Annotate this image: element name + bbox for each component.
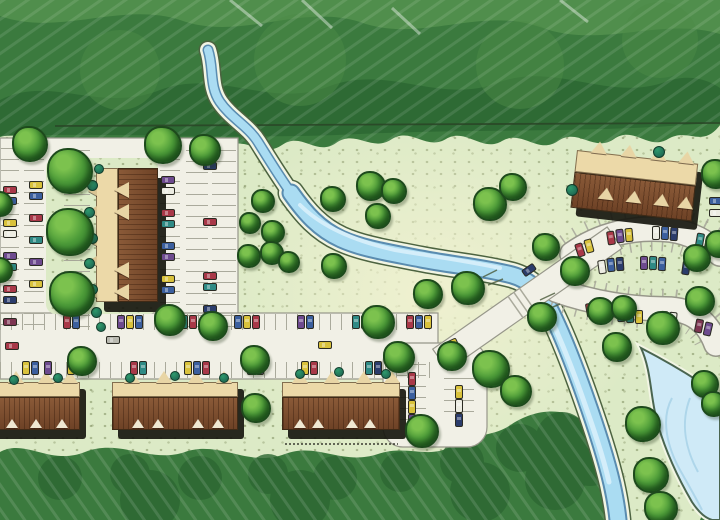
parked-car: [135, 315, 143, 329]
tree: [499, 173, 527, 201]
stall-lines: [1, 148, 19, 332]
building-east: [570, 150, 698, 223]
parked-car: [709, 209, 720, 217]
parked-car: [161, 176, 175, 184]
parked-car: [161, 187, 175, 195]
parked-car: [29, 258, 43, 266]
tree: [361, 305, 395, 339]
shrub: [9, 375, 19, 385]
parked-car: [658, 257, 667, 271]
shrub: [334, 367, 344, 377]
shrub: [653, 146, 665, 158]
tree: [611, 295, 637, 321]
parked-car: [649, 256, 657, 270]
shrub: [219, 373, 229, 383]
tree: [12, 126, 48, 162]
parked-car: [161, 253, 175, 261]
tree: [633, 457, 669, 493]
parked-car: [297, 315, 305, 329]
tree: [646, 311, 680, 345]
parked-car: [3, 296, 17, 304]
forest-top: [0, 0, 720, 160]
parked-car: [161, 275, 175, 283]
tree: [602, 332, 632, 362]
parked-car: [352, 315, 360, 329]
parked-car: [455, 399, 463, 413]
tree: [532, 233, 560, 261]
tree: [278, 251, 300, 273]
shrub: [84, 258, 95, 269]
tree: [189, 134, 221, 166]
tree: [251, 189, 275, 213]
parked-car: [29, 236, 43, 244]
parked-car: [310, 361, 318, 375]
shrub: [96, 322, 106, 332]
parked-car: [29, 280, 43, 288]
parked-car: [408, 400, 416, 414]
parked-car: [161, 220, 175, 228]
parked-car: [640, 256, 648, 270]
parked-car: [117, 315, 125, 329]
tree: [237, 244, 261, 268]
parked-car: [161, 242, 175, 250]
parked-car: [29, 181, 43, 189]
tree: [405, 414, 439, 448]
parked-car: [234, 315, 242, 329]
tree: [381, 178, 407, 204]
parked-car: [408, 386, 416, 400]
parked-car: [44, 361, 52, 375]
parked-car: [408, 372, 416, 386]
tree: [701, 391, 720, 417]
tree: [144, 126, 182, 164]
parked-car: [203, 218, 217, 226]
stall-lines: [212, 150, 236, 328]
parked-car: [189, 315, 197, 329]
shrub: [170, 371, 180, 381]
parked-car: [161, 209, 175, 217]
tree: [451, 271, 485, 305]
parked-car: [318, 341, 332, 349]
parked-car: [652, 226, 660, 240]
parked-car: [202, 361, 210, 375]
shrub: [94, 164, 104, 174]
tree: [383, 341, 415, 373]
tree: [413, 279, 443, 309]
parked-car: [3, 219, 17, 227]
parked-car: [415, 315, 423, 329]
parked-car: [455, 385, 463, 399]
parked-car: [606, 258, 615, 273]
parked-car: [126, 315, 134, 329]
parked-car: [29, 192, 43, 200]
parked-car: [252, 315, 260, 329]
tree: [198, 311, 228, 341]
shrub: [295, 369, 305, 379]
parked-car: [670, 227, 679, 242]
parked-car: [31, 361, 39, 375]
parked-car: [72, 315, 80, 329]
tree: [154, 304, 186, 336]
tree: [365, 203, 391, 229]
parked-car: [184, 361, 192, 375]
shrub: [53, 373, 63, 383]
parked-car: [3, 318, 17, 326]
tree: [625, 406, 661, 442]
parked-car: [22, 361, 30, 375]
scene: [0, 0, 720, 520]
parked-car: [615, 229, 625, 244]
parked-car: [243, 315, 251, 329]
parked-car: [455, 413, 463, 427]
tree: [49, 271, 95, 317]
parked-car: [3, 285, 17, 293]
shrub: [125, 373, 135, 383]
tree: [437, 341, 467, 371]
tree: [321, 253, 347, 279]
tree: [320, 186, 346, 212]
tree: [644, 491, 678, 520]
tree: [500, 375, 532, 407]
shrub: [91, 307, 102, 318]
tree: [240, 345, 270, 375]
shrub: [566, 184, 578, 196]
parked-car: [193, 361, 201, 375]
parked-car: [616, 257, 625, 272]
tree: [67, 346, 97, 376]
tree: [685, 286, 715, 316]
tree: [47, 148, 93, 194]
parked-car: [661, 226, 669, 240]
parked-car: [424, 315, 432, 329]
parked-car: [203, 272, 217, 280]
tree: [46, 208, 94, 256]
parked-car: [709, 197, 720, 205]
parked-car: [139, 361, 147, 375]
parked-car: [203, 283, 217, 291]
parked-car: [29, 214, 43, 222]
tree: [527, 302, 557, 332]
parked-car: [406, 315, 414, 329]
site-plan-rendering: [0, 0, 720, 520]
parked-car: [106, 336, 120, 344]
tree: [241, 393, 271, 423]
parked-car: [63, 315, 71, 329]
parked-car: [365, 361, 373, 375]
parked-car: [306, 315, 314, 329]
parked-car: [5, 342, 19, 350]
tree: [560, 256, 590, 286]
stall-lines: [186, 150, 208, 328]
tree: [239, 212, 261, 234]
parked-car: [3, 230, 17, 238]
parked-car: [161, 286, 175, 294]
parked-car: [624, 228, 633, 243]
